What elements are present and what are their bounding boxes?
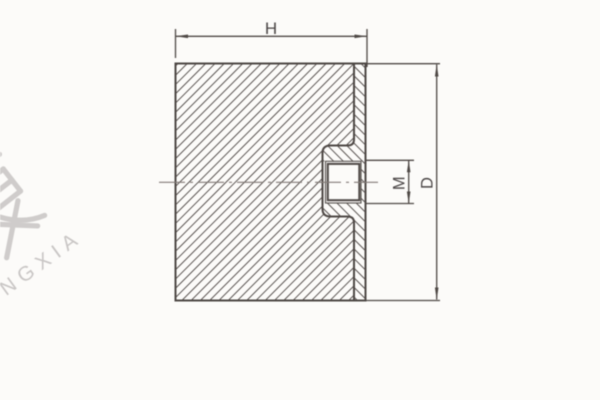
svg-text:M: M (391, 176, 409, 190)
svg-text:D: D (419, 177, 437, 189)
svg-text:H: H (265, 19, 277, 38)
